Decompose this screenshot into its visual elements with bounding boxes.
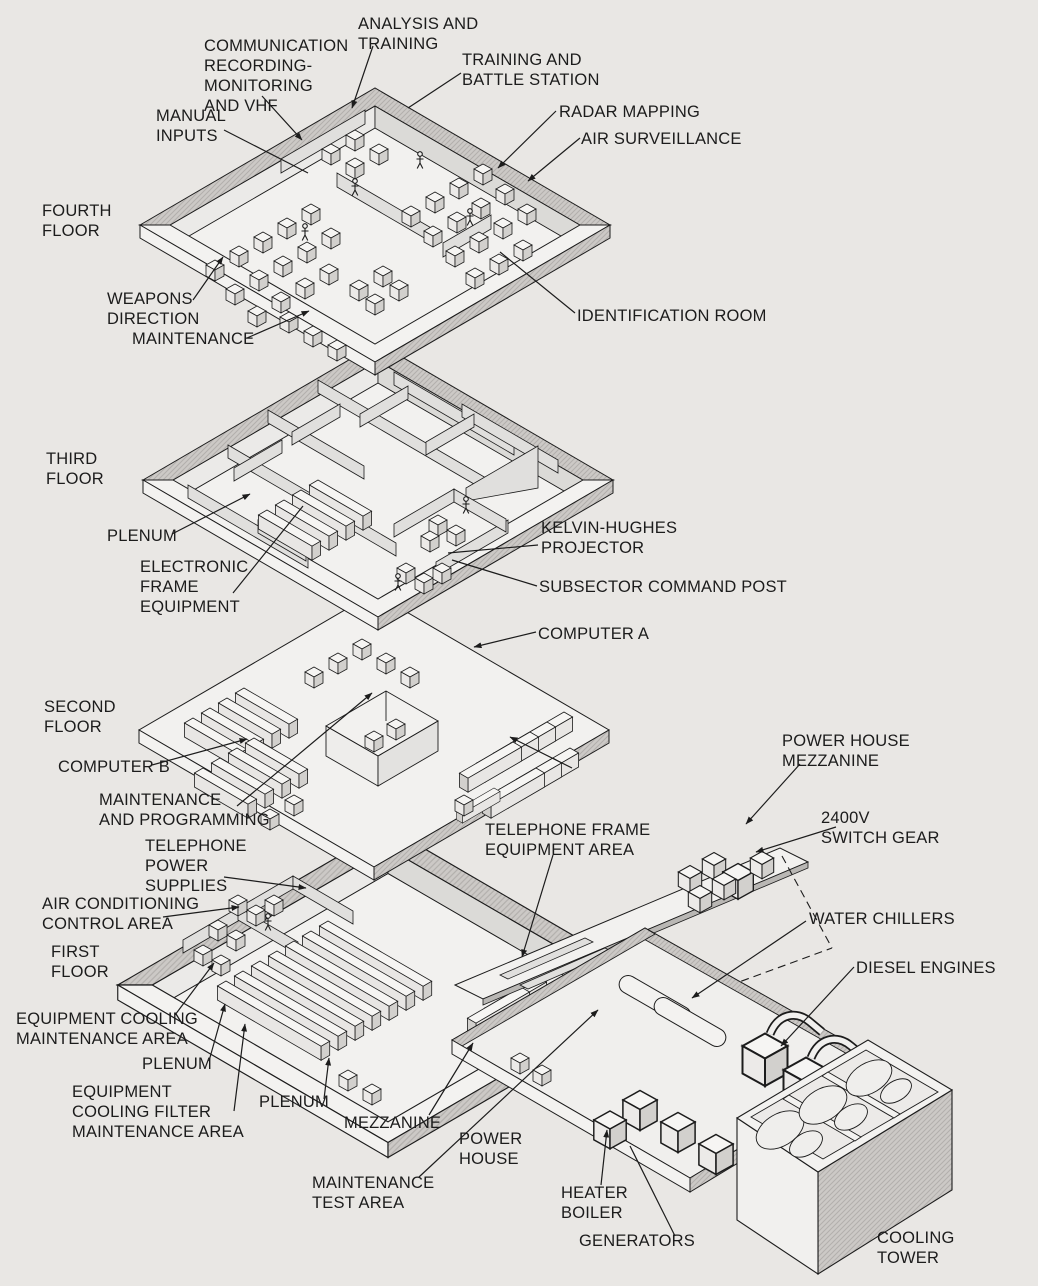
label-maintenance: MAINTENANCE bbox=[132, 329, 254, 349]
label-analysis-and-training: ANALYSIS AND TRAINING bbox=[358, 14, 478, 54]
leader-training-battle-station bbox=[408, 73, 461, 108]
label-diesel-engines: DIESEL ENGINES bbox=[856, 958, 996, 978]
label-equipment-cooling-filter: EQUIPMENT COOLING FILTER MAINTENANCE ARE… bbox=[72, 1082, 244, 1142]
label-communication-recording: COMMUNICATION RECORDING- MONITORING AND … bbox=[204, 36, 348, 116]
label-2400v-switch-gear: 2400V SWITCH GEAR bbox=[821, 808, 940, 848]
label-power-house: POWER HOUSE bbox=[459, 1129, 522, 1169]
label-power-house-mezzanine: POWER HOUSE MEZZANINE bbox=[782, 731, 910, 771]
leader-computer-a bbox=[474, 632, 536, 647]
label-plenum-third: PLENUM bbox=[107, 526, 177, 546]
label-weapons-direction: WEAPONS DIRECTION bbox=[107, 289, 200, 329]
label-plenum-first-a: PLENUM bbox=[142, 1054, 212, 1074]
leader-air-surveillance bbox=[528, 138, 580, 181]
leader-power-house-mezzanine bbox=[746, 764, 800, 824]
label-radar-mapping: RADAR MAPPING bbox=[559, 102, 700, 122]
label-telephone-frame-equipment-area: TELEPHONE FRAME EQUIPMENT AREA bbox=[485, 820, 650, 860]
label-first-floor: FIRST FLOOR bbox=[51, 942, 109, 982]
label-fourth-floor: FOURTH FLOOR bbox=[42, 201, 112, 241]
label-air-conditioning-control-area: AIR CONDITIONING CONTROL AREA bbox=[42, 894, 199, 934]
label-identification-room: IDENTIFICATION ROOM bbox=[577, 306, 767, 326]
label-telephone-power-supplies: TELEPHONE POWER SUPPLIES bbox=[145, 836, 247, 896]
diagram-page: ANALYSIS AND TRAINING COMMUNICATION RECO… bbox=[0, 0, 1038, 1286]
leader-radar-mapping bbox=[498, 111, 556, 168]
label-computer-b: COMPUTER B bbox=[58, 757, 170, 777]
label-training-and-battle-station: TRAINING AND BATTLE STATION bbox=[462, 50, 600, 90]
label-water-chillers: WATER CHILLERS bbox=[809, 909, 955, 929]
label-heater-boiler: HEATER BOILER bbox=[561, 1183, 628, 1223]
label-maintenance-test-area: MAINTENANCE TEST AREA bbox=[312, 1173, 434, 1213]
label-manual-inputs: MANUAL INPUTS bbox=[156, 106, 226, 146]
label-equipment-cooling-maintenance: EQUIPMENT COOLING MAINTENANCE AREA bbox=[16, 1009, 198, 1049]
label-electronic-frame-equipment: ELECTRONIC FRAME EQUIPMENT bbox=[140, 557, 248, 617]
label-computer-a: COMPUTER A bbox=[538, 624, 649, 644]
label-mezzanine: MEZZANINE bbox=[344, 1113, 441, 1133]
label-air-surveillance: AIR SURVEILLANCE bbox=[581, 129, 742, 149]
label-second-floor: SECOND FLOOR bbox=[44, 697, 116, 737]
heater-boiler-unit bbox=[594, 1111, 626, 1149]
label-subsector-command-post: SUBSECTOR COMMAND POST bbox=[539, 577, 787, 597]
label-plenum-first-b: PLENUM bbox=[259, 1092, 329, 1112]
label-kelvin-hughes-projector: KELVIN-HUGHES PROJECTOR bbox=[541, 518, 677, 558]
label-cooling-tower: COOLING TOWER bbox=[877, 1228, 955, 1268]
label-third-floor: THIRD FLOOR bbox=[46, 449, 104, 489]
label-generators: GENERATORS bbox=[579, 1231, 695, 1251]
label-maintenance-and-programming: MAINTENANCE AND PROGRAMMING bbox=[99, 790, 270, 830]
